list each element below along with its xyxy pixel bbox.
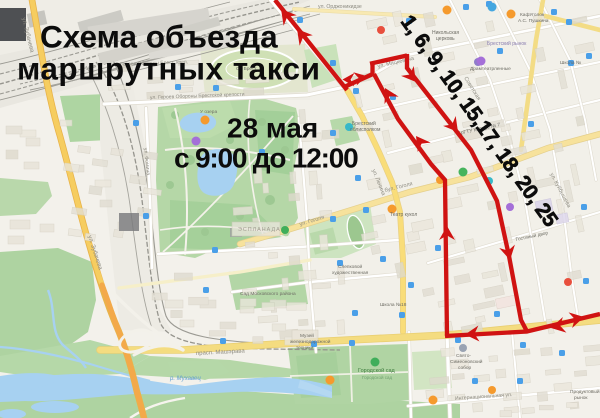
- svg-text:собор: собор: [458, 365, 472, 371]
- svg-text:техники: техники: [296, 346, 314, 351]
- svg-text:Городской сад: Городской сад: [358, 367, 396, 374]
- svg-text:А.С. Пушкина: А.С. Пушкина: [518, 18, 549, 24]
- svg-text:28 мая: 28 мая: [227, 113, 318, 144]
- svg-text:Схема объезда: Схема объезда: [40, 19, 278, 55]
- svg-text:Драмтеатрленные: Драмтеатрленные: [470, 66, 511, 72]
- svg-text:р. Мухавец: р. Мухавец: [169, 376, 201, 382]
- svg-text:Городской сад: Городской сад: [362, 374, 392, 380]
- svg-text:Симеоновский: Симеоновский: [450, 358, 483, 365]
- svg-text:рынок: рынок: [574, 396, 588, 401]
- svg-text:с 9:00 до 12:00: с 9:00 до 12:00: [174, 143, 358, 174]
- svg-text:железнодорожной: железнодорожной: [290, 338, 331, 345]
- svg-text:церковь: церковь: [436, 36, 455, 42]
- svg-text:художественная: художественная: [332, 271, 369, 276]
- svg-text:ЭСПЛАНАДА: ЭСПЛАНАДА: [238, 227, 281, 233]
- svg-text:Свято-: Свято-: [456, 353, 471, 359]
- svg-text:Театр кукол: Театр кукол: [390, 212, 417, 218]
- svg-text:ул. Орджоникидзе: ул. Орджоникидзе: [318, 4, 362, 10]
- svg-text:маршрутных такси: маршрутных такси: [17, 51, 320, 87]
- svg-text:Продуктовый: Продуктовый: [570, 388, 600, 395]
- svg-text:Школа №: Школа №: [560, 60, 581, 66]
- svg-text:Брестский: Брестский: [352, 120, 376, 127]
- svg-text:Школа №18: Школа №18: [380, 302, 407, 308]
- svg-text:Музей: Музей: [300, 332, 314, 339]
- svg-text:облисполком: облисполком: [350, 127, 381, 133]
- svg-text:Брестский рынок: Брестский рынок: [487, 40, 527, 47]
- svg-text:У озера: У озера: [200, 109, 217, 115]
- svg-text:Сад Московского района: Сад Московского района: [240, 290, 296, 297]
- svg-text:КафУголок: КафУголок: [520, 12, 545, 18]
- svg-text:Слепковой: Слепковой: [338, 263, 363, 270]
